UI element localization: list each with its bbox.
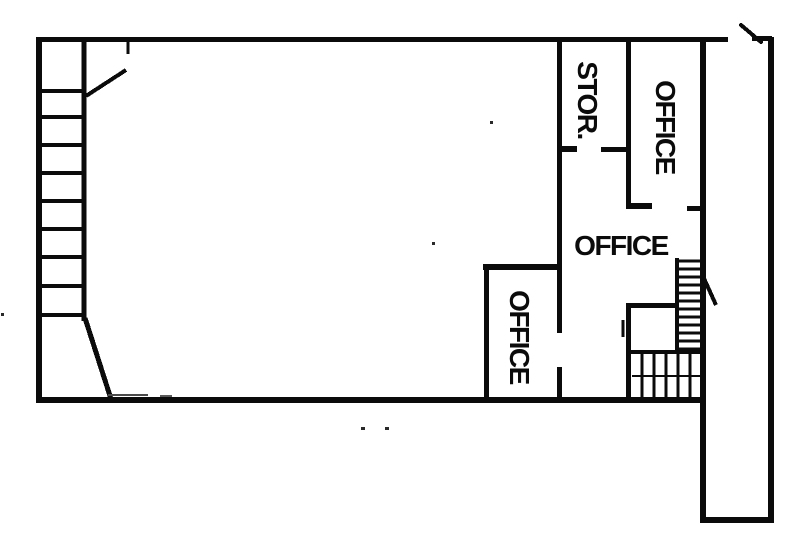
office-bottom-wall: [626, 203, 652, 209]
stair-up-diagonal: [86, 70, 126, 96]
right-exterior-wall: [768, 37, 774, 523]
storage-door-jamb: [557, 146, 577, 152]
floor-plan: STOR. OFFICE OFFICE OFFICE: [0, 0, 799, 543]
stair-bottom-diagonal: [85, 318, 111, 399]
storage-label: STOR.: [573, 61, 601, 139]
corridor-bottom-wall: [700, 517, 774, 523]
storage-right-wall: [626, 39, 631, 209]
left-staircase: [37, 39, 128, 399]
office-middle-label: OFFICE: [574, 232, 668, 260]
storage-left-wall-lower-segment: [557, 367, 562, 400]
office-lower-left-label: OFFICE: [505, 290, 533, 384]
top-right-break-mark: [741, 25, 761, 42]
scan-specks: [1, 121, 493, 430]
landing-top-wall: [626, 303, 678, 308]
break-diagonal: [741, 25, 761, 42]
top-wall: [36, 37, 728, 42]
office-left-wall: [484, 264, 489, 400]
bottom-wall: [36, 397, 706, 403]
office-door-jamb: [687, 206, 703, 211]
office-top-right-label: OFFICE: [651, 80, 679, 174]
office-top-right-walls: [626, 203, 703, 211]
office-top-wall: [483, 264, 560, 270]
storage-left-wall: [557, 39, 562, 333]
